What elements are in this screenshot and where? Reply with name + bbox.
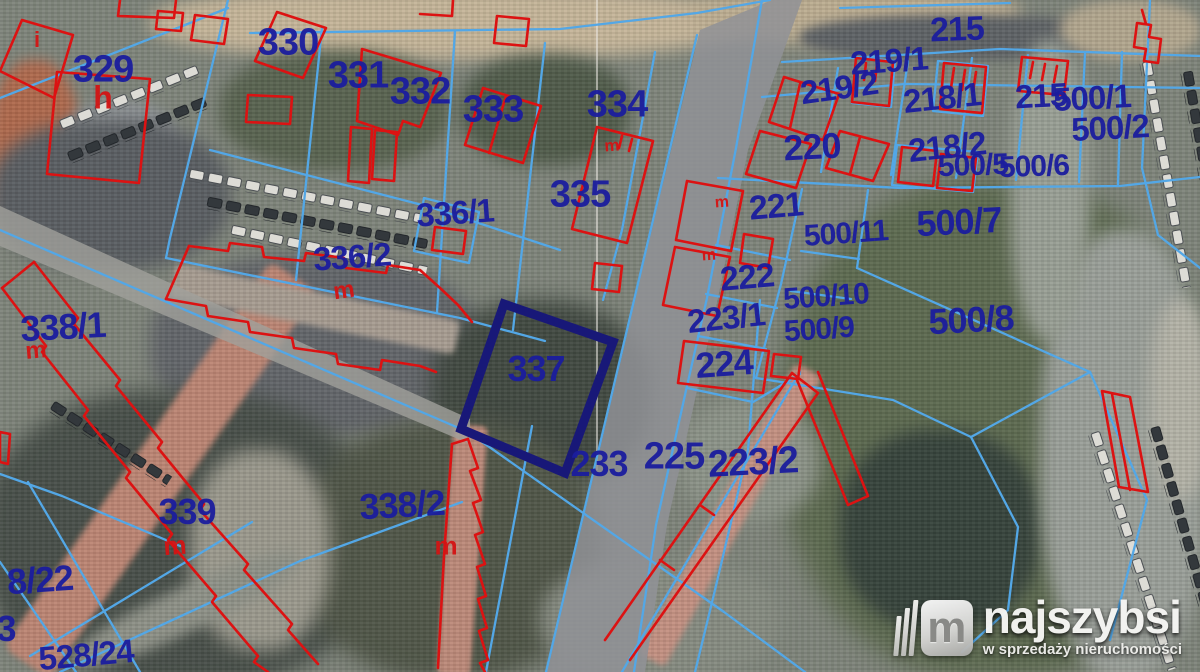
logo-pages-icon	[895, 596, 919, 656]
watermark-logo: m najszybsi w sprzedaży nieruchomości	[895, 594, 1182, 658]
map-overlay	[0, 0, 1200, 672]
logo-letter: m	[927, 608, 966, 648]
brand-m-icon: m	[895, 594, 973, 658]
brand-name: najszybsi	[983, 597, 1182, 637]
brand-text: najszybsi w sprzedaży nieruchomości	[983, 597, 1182, 658]
brand-tagline: w sprzedaży nieruchomości	[983, 641, 1182, 658]
logo-m-box: m	[921, 600, 973, 656]
highlighted-parcel-337-outline[interactable]	[461, 304, 613, 473]
map-canvas[interactable]: 329330331332333334335336/1336/2337338/13…	[0, 0, 1200, 672]
